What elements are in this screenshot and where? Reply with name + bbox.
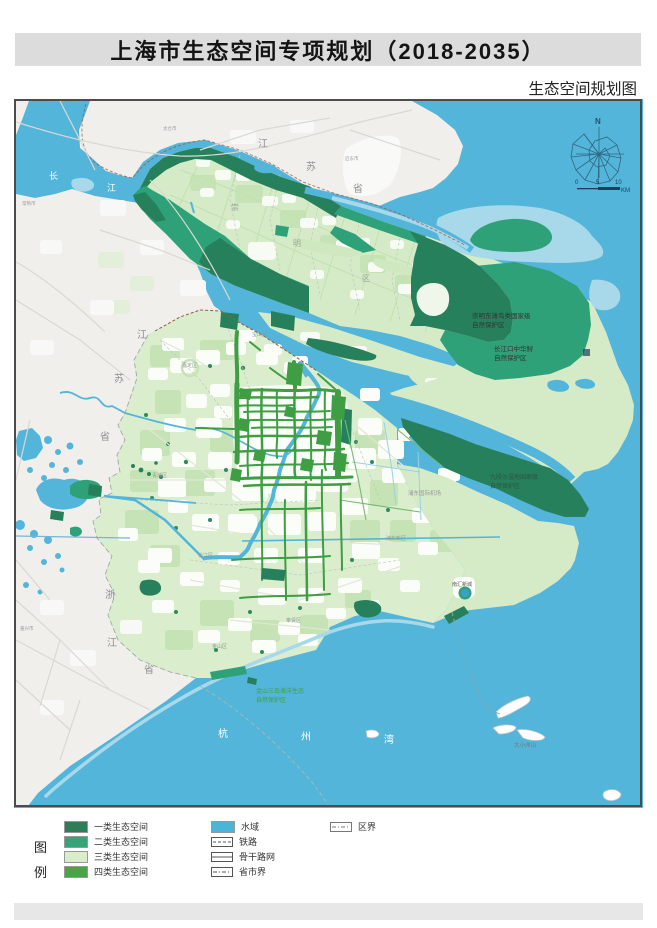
- svg-text:奉贤区: 奉贤区: [286, 617, 301, 624]
- svg-text:江: 江: [107, 183, 116, 193]
- svg-text:太仓市: 太仓市: [163, 125, 177, 132]
- svg-text:宝山区: 宝山区: [252, 331, 267, 338]
- svg-text:杭: 杭: [218, 727, 228, 740]
- svg-text:青浦区: 青浦区: [152, 472, 167, 479]
- svg-text:江: 江: [137, 329, 147, 341]
- svg-text:苏: 苏: [306, 160, 316, 173]
- svg-text:九段沙湿地国家级: 九段沙湿地国家级: [490, 473, 538, 481]
- svg-text:湾: 湾: [384, 733, 394, 746]
- svg-text:自然保护区: 自然保护区: [472, 320, 505, 329]
- svg-text:自然保护区: 自然保护区: [256, 696, 286, 704]
- svg-text:浙: 浙: [105, 589, 115, 601]
- svg-text:浦东国际机场: 浦东国际机场: [408, 489, 442, 497]
- svg-text:松江区: 松江区: [198, 552, 213, 559]
- svg-text:KM: KM: [621, 188, 630, 194]
- svg-text:长江口中华鲟: 长江口中华鲟: [494, 344, 534, 353]
- svg-text:江: 江: [258, 138, 268, 150]
- svg-text:南汇新城: 南汇新城: [452, 581, 472, 588]
- svg-text:金山区: 金山区: [212, 643, 227, 650]
- svg-text:州: 州: [301, 731, 311, 743]
- svg-text:长: 长: [49, 170, 58, 181]
- svg-text:崇明东滩鸟类国家级: 崇明东滩鸟类国家级: [472, 311, 531, 320]
- svg-text:常熟市: 常熟市: [22, 200, 36, 207]
- svg-text:10: 10: [615, 180, 622, 186]
- svg-text:启东市: 启东市: [345, 155, 359, 162]
- svg-text:自然保护区: 自然保护区: [490, 482, 520, 490]
- svg-text:自然保护区: 自然保护区: [494, 353, 527, 362]
- svg-text:N: N: [595, 117, 601, 126]
- svg-text:江: 江: [107, 637, 117, 649]
- svg-text:明: 明: [293, 239, 301, 248]
- svg-text:省: 省: [100, 430, 110, 443]
- svg-text:崇: 崇: [231, 203, 239, 212]
- svg-text:省: 省: [353, 182, 363, 195]
- svg-text:嘉定区: 嘉定区: [182, 362, 197, 369]
- svg-text:大小洋山: 大小洋山: [514, 741, 536, 749]
- svg-text:金山三岛海洋生态: 金山三岛海洋生态: [256, 687, 304, 695]
- svg-text:省: 省: [144, 663, 154, 676]
- svg-text:嘉兴市: 嘉兴市: [20, 625, 34, 632]
- svg-text:苏: 苏: [114, 372, 124, 385]
- svg-text:浦东新区: 浦东新区: [386, 535, 406, 542]
- svg-text:区: 区: [362, 274, 370, 283]
